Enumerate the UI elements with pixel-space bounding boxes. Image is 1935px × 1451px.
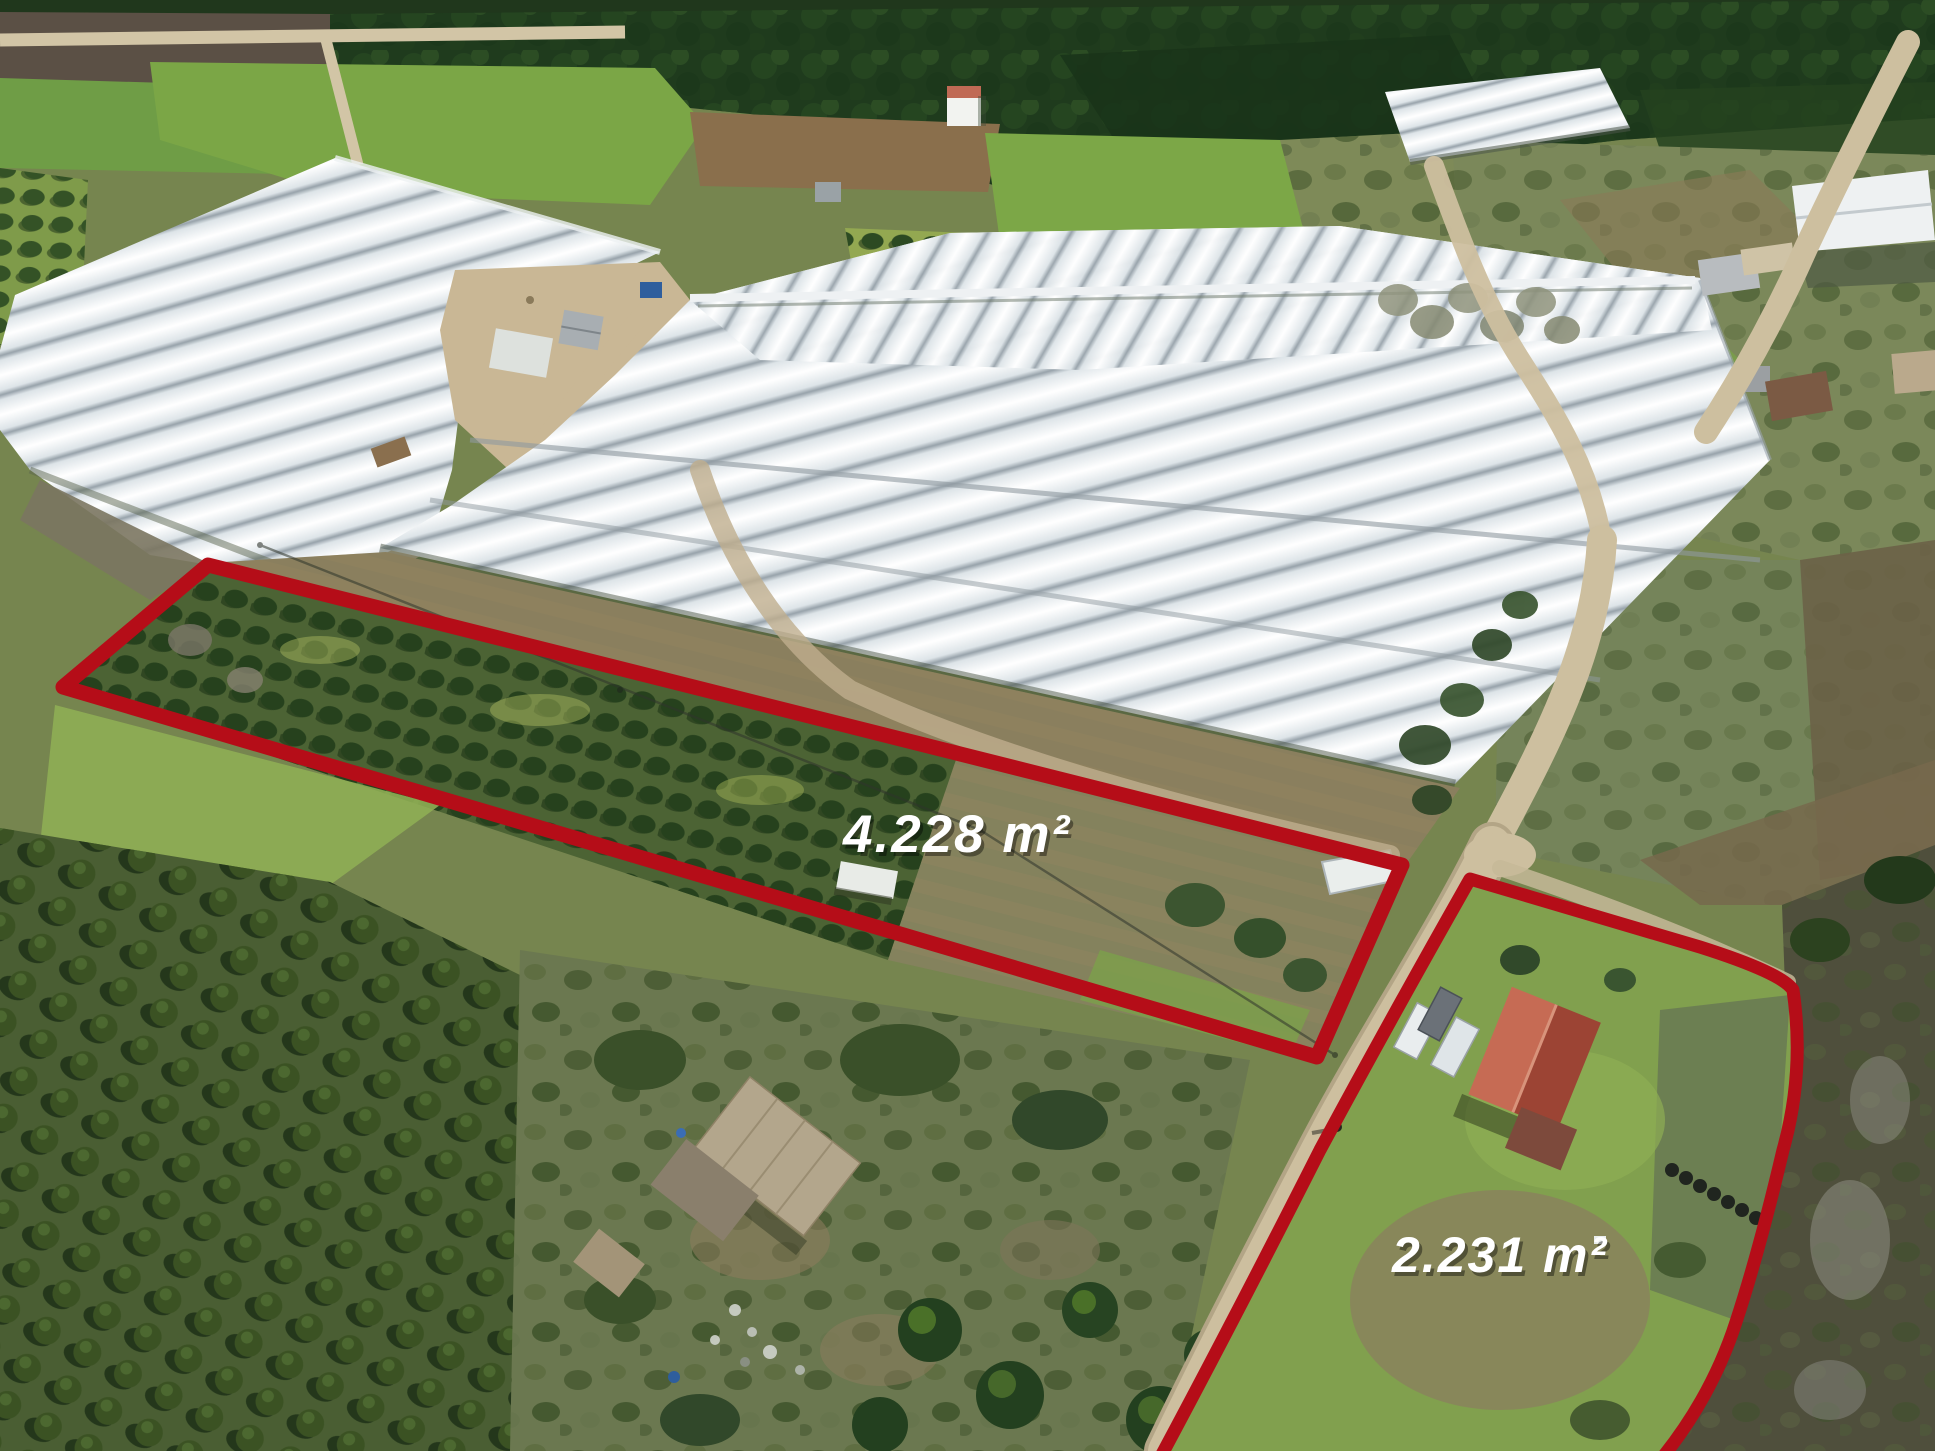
parcel-2-area-label: 2.231 m² — [1391, 1227, 1608, 1283]
hut-on-wall — [815, 182, 841, 202]
top-road — [0, 32, 625, 40]
blue-tarp-on-roof — [676, 1128, 686, 1138]
aerial-listing-photo: 4.228 m² 4.228 m² 2.231 m² 2.231 m² — [0, 0, 1935, 1451]
aerial-scene: 4.228 m² 4.228 m² 2.231 m² 2.231 m² — [0, 0, 1935, 1451]
parcel-1-area-label: 4.228 m² — [842, 805, 1071, 864]
blue-tarp — [668, 1371, 680, 1383]
blue-container — [640, 282, 662, 298]
